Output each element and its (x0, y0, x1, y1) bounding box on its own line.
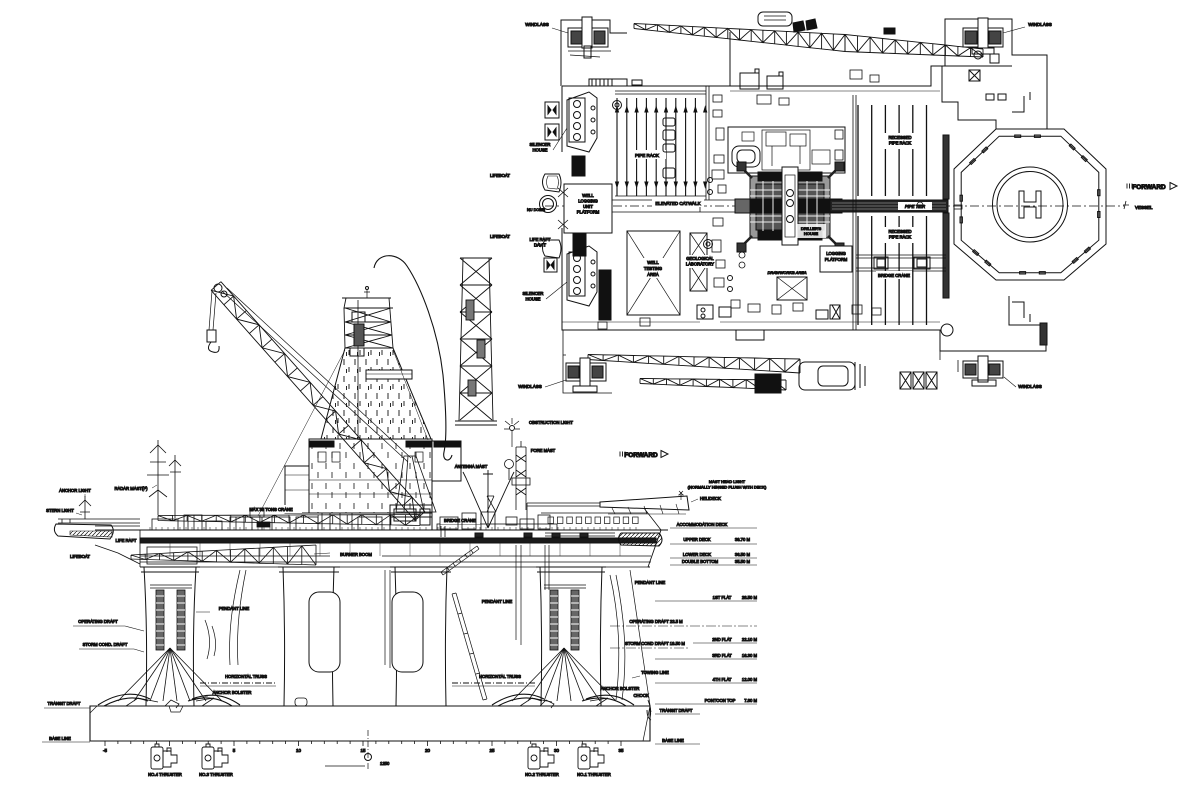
svg-text:35: 35 (618, 748, 624, 753)
svg-text:HORIZONTAL TRUSS: HORIZONTAL TRUSS (225, 674, 267, 679)
svg-text:12.00 M: 12.00 M (742, 677, 758, 682)
svg-text:28.50 M: 28.50 M (742, 595, 758, 600)
svg-text:(NORMALLY HINGED FLUSH WITH: (NORMALLY HINGED FLUSH WITH DECK) (688, 484, 767, 489)
svg-text:NO.1 THRUSTER: NO.1 THRUSTER (577, 772, 611, 777)
svg-text:1250: 1250 (380, 761, 390, 766)
svg-text:PIPE RACK: PIPE RACK (889, 141, 912, 146)
svg-text:FORWARD: FORWARD (1132, 184, 1166, 191)
svg-text:TRANSIT DRAFT: TRANSIT DRAFT (660, 708, 693, 713)
svg-text:HORIZONTAL TRUSS: HORIZONTAL TRUSS (479, 674, 521, 679)
svg-text:ANTENNA MAST: ANTENNA MAST (455, 464, 488, 469)
svg-text:LIFE RAFT: LIFE RAFT (530, 237, 551, 242)
svg-text:UNIT: UNIT (583, 204, 593, 209)
svg-text:BRIDGE CRANE: BRIDGE CRANE (878, 273, 910, 278)
svg-text:PLATFORM: PLATFORM (825, 257, 848, 262)
svg-text:DRAWWORKS AREA: DRAWWORKS AREA (767, 270, 806, 275)
svg-text:SILENCER: SILENCER (530, 142, 551, 147)
svg-text:PIPE RACK: PIPE RACK (635, 153, 659, 158)
svg-text:FORE MAST: FORE MAST (531, 448, 556, 453)
svg-text:PENDANT LINE: PENDANT LINE (635, 580, 666, 585)
svg-text:15: 15 (360, 748, 366, 753)
svg-text:LABORATORY: LABORATORY (686, 262, 714, 267)
svg-text:TESTING: TESTING (644, 266, 662, 271)
svg-text:STORM COND DRAFT 19.50 M: STORM COND DRAFT 19.50 M (625, 641, 685, 646)
svg-text:MAST HEAD LIGHT: MAST HEAD LIGHT (709, 479, 746, 484)
svg-text:35.50 M: 35.50 M (735, 559, 751, 564)
svg-text:RECESSED: RECESSED (888, 229, 911, 234)
svg-text:39.70 M: 39.70 M (735, 537, 751, 542)
svg-text:1ST FLAT: 1ST FLAT (713, 595, 732, 600)
svg-text:BURNER BOOM: BURNER BOOM (340, 552, 372, 557)
svg-text:20: 20 (425, 748, 431, 753)
svg-text:LOGGING: LOGGING (578, 199, 598, 204)
svg-text:25: 25 (489, 748, 495, 753)
svg-text:WELL: WELL (582, 193, 594, 198)
svg-text:WINDLASS: WINDLASS (1028, 22, 1052, 27)
svg-text:STORM COND. DRAFT: STORM COND. DRAFT (83, 642, 128, 647)
svg-text:NO.4 THRUSTER: NO.4 THRUSTER (148, 772, 182, 777)
svg-text:36.50 M: 36.50 M (735, 552, 751, 557)
svg-text:ELEVATED CATWALK: ELEVATED CATWALK (655, 201, 700, 206)
svg-text:WINDLASS: WINDLASS (518, 384, 542, 389)
svg-text:LIFE RAFT: LIFE RAFT (116, 538, 137, 543)
svg-text:WINDLASS: WINDLASS (1018, 384, 1042, 389)
svg-text:WINDLASS: WINDLASS (525, 22, 549, 27)
svg-text:PENDANT LINE: PENDANT LINE (219, 606, 250, 611)
svg-text:3RD FLAT: 3RD FLAT (712, 653, 732, 658)
svg-text:PLATFORM: PLATFORM (577, 210, 600, 215)
svg-text:LIFEBOAT: LIFEBOAT (70, 554, 90, 559)
svg-text:LOWER DECK: LOWER DECK (683, 552, 711, 557)
svg-text:PIPE RACK: PIPE RACK (889, 235, 912, 240)
svg-text:DAVIT: DAVIT (534, 243, 546, 248)
svg-text:ANCHOR BOLSTER: ANCHOR BOLSTER (213, 690, 252, 695)
svg-text:30: 30 (554, 748, 560, 753)
svg-text:HELIDECK: HELIDECK (700, 496, 721, 501)
svg-text:OPERATING DRAFT: OPERATING DRAFT (78, 619, 118, 624)
svg-text:OPERATING DRAFT 23.5 M: OPERATING DRAFT 23.5 M (629, 619, 683, 624)
svg-text:NO.2 THRUSTER: NO.2 THRUSTER (525, 772, 559, 777)
svg-text:HOUSE: HOUSE (526, 297, 541, 302)
svg-text:AREA: AREA (647, 272, 659, 277)
svg-text:RADAR MAST(P): RADAR MAST(P) (114, 486, 148, 491)
svg-text:LOGGING: LOGGING (826, 251, 846, 256)
svg-text:VESSEL: VESSEL (1135, 205, 1153, 210)
svg-text:TRANSIT DRAFT: TRANSIT DRAFT (48, 701, 81, 706)
svg-text:OBSTRUCTION LIGHT: OBSTRUCTION LIGHT (529, 420, 573, 425)
svg-text:LIFEBOAT: LIFEBOAT (490, 173, 510, 178)
svg-text:22.10 M: 22.10 M (742, 637, 758, 642)
svg-text:HOUSE: HOUSE (804, 231, 819, 236)
svg-text:NU DOME: NU DOME (527, 208, 545, 212)
svg-text:SILENCER: SILENCER (523, 291, 544, 296)
svg-text:ANCHOR BOLSTER: ANCHOR BOLSTER (601, 686, 640, 691)
svg-text:2ND FLAT: 2ND FLAT (712, 637, 732, 642)
svg-text:-5: -5 (103, 748, 107, 753)
svg-text:TOWING LINE: TOWING LINE (641, 670, 669, 675)
svg-text:4TH FLAT: 4TH FLAT (712, 677, 731, 682)
svg-text:BASE LINE: BASE LINE (49, 736, 71, 741)
svg-text:PENDANT LINE: PENDANT LINE (482, 599, 513, 604)
svg-text:PIPE TIER: PIPE TIER (905, 204, 925, 209)
svg-text:CHOCK: CHOCK (633, 693, 648, 698)
svg-text:DOUBLE BOTTOM: DOUBLE BOTTOM (682, 559, 719, 564)
svg-text:16.30 M: 16.30 M (742, 653, 758, 658)
svg-text:LIFEBOAT: LIFEBOAT (490, 234, 510, 239)
svg-text:BASE LINE: BASE LINE (662, 738, 684, 743)
svg-text:UPPER DECK: UPPER DECK (683, 537, 710, 542)
svg-text:10: 10 (296, 748, 302, 753)
svg-text:STERN LIGHT: STERN LIGHT (46, 508, 74, 513)
svg-text:ANCHOR LIGHT: ANCHOR LIGHT (59, 488, 91, 493)
svg-text:BRIDGE CRANE: BRIDGE CRANE (444, 518, 476, 523)
svg-text:ACCOMMODATION DECK: ACCOMMODATION DECK (677, 522, 728, 527)
svg-text:GEOLOGICAL: GEOLOGICAL (686, 256, 714, 261)
svg-text:NO.3 THRUSTER: NO.3 THRUSTER (199, 772, 233, 777)
svg-text:PONTOON TOP: PONTOON TOP (705, 698, 736, 703)
svg-text:7.80 M: 7.80 M (744, 698, 757, 703)
svg-text:FORWARD: FORWARD (624, 452, 658, 459)
svg-text:WELL: WELL (647, 260, 659, 265)
svg-text:RECESSED: RECESSED (888, 135, 911, 140)
svg-text:HOUSE: HOUSE (533, 148, 548, 153)
